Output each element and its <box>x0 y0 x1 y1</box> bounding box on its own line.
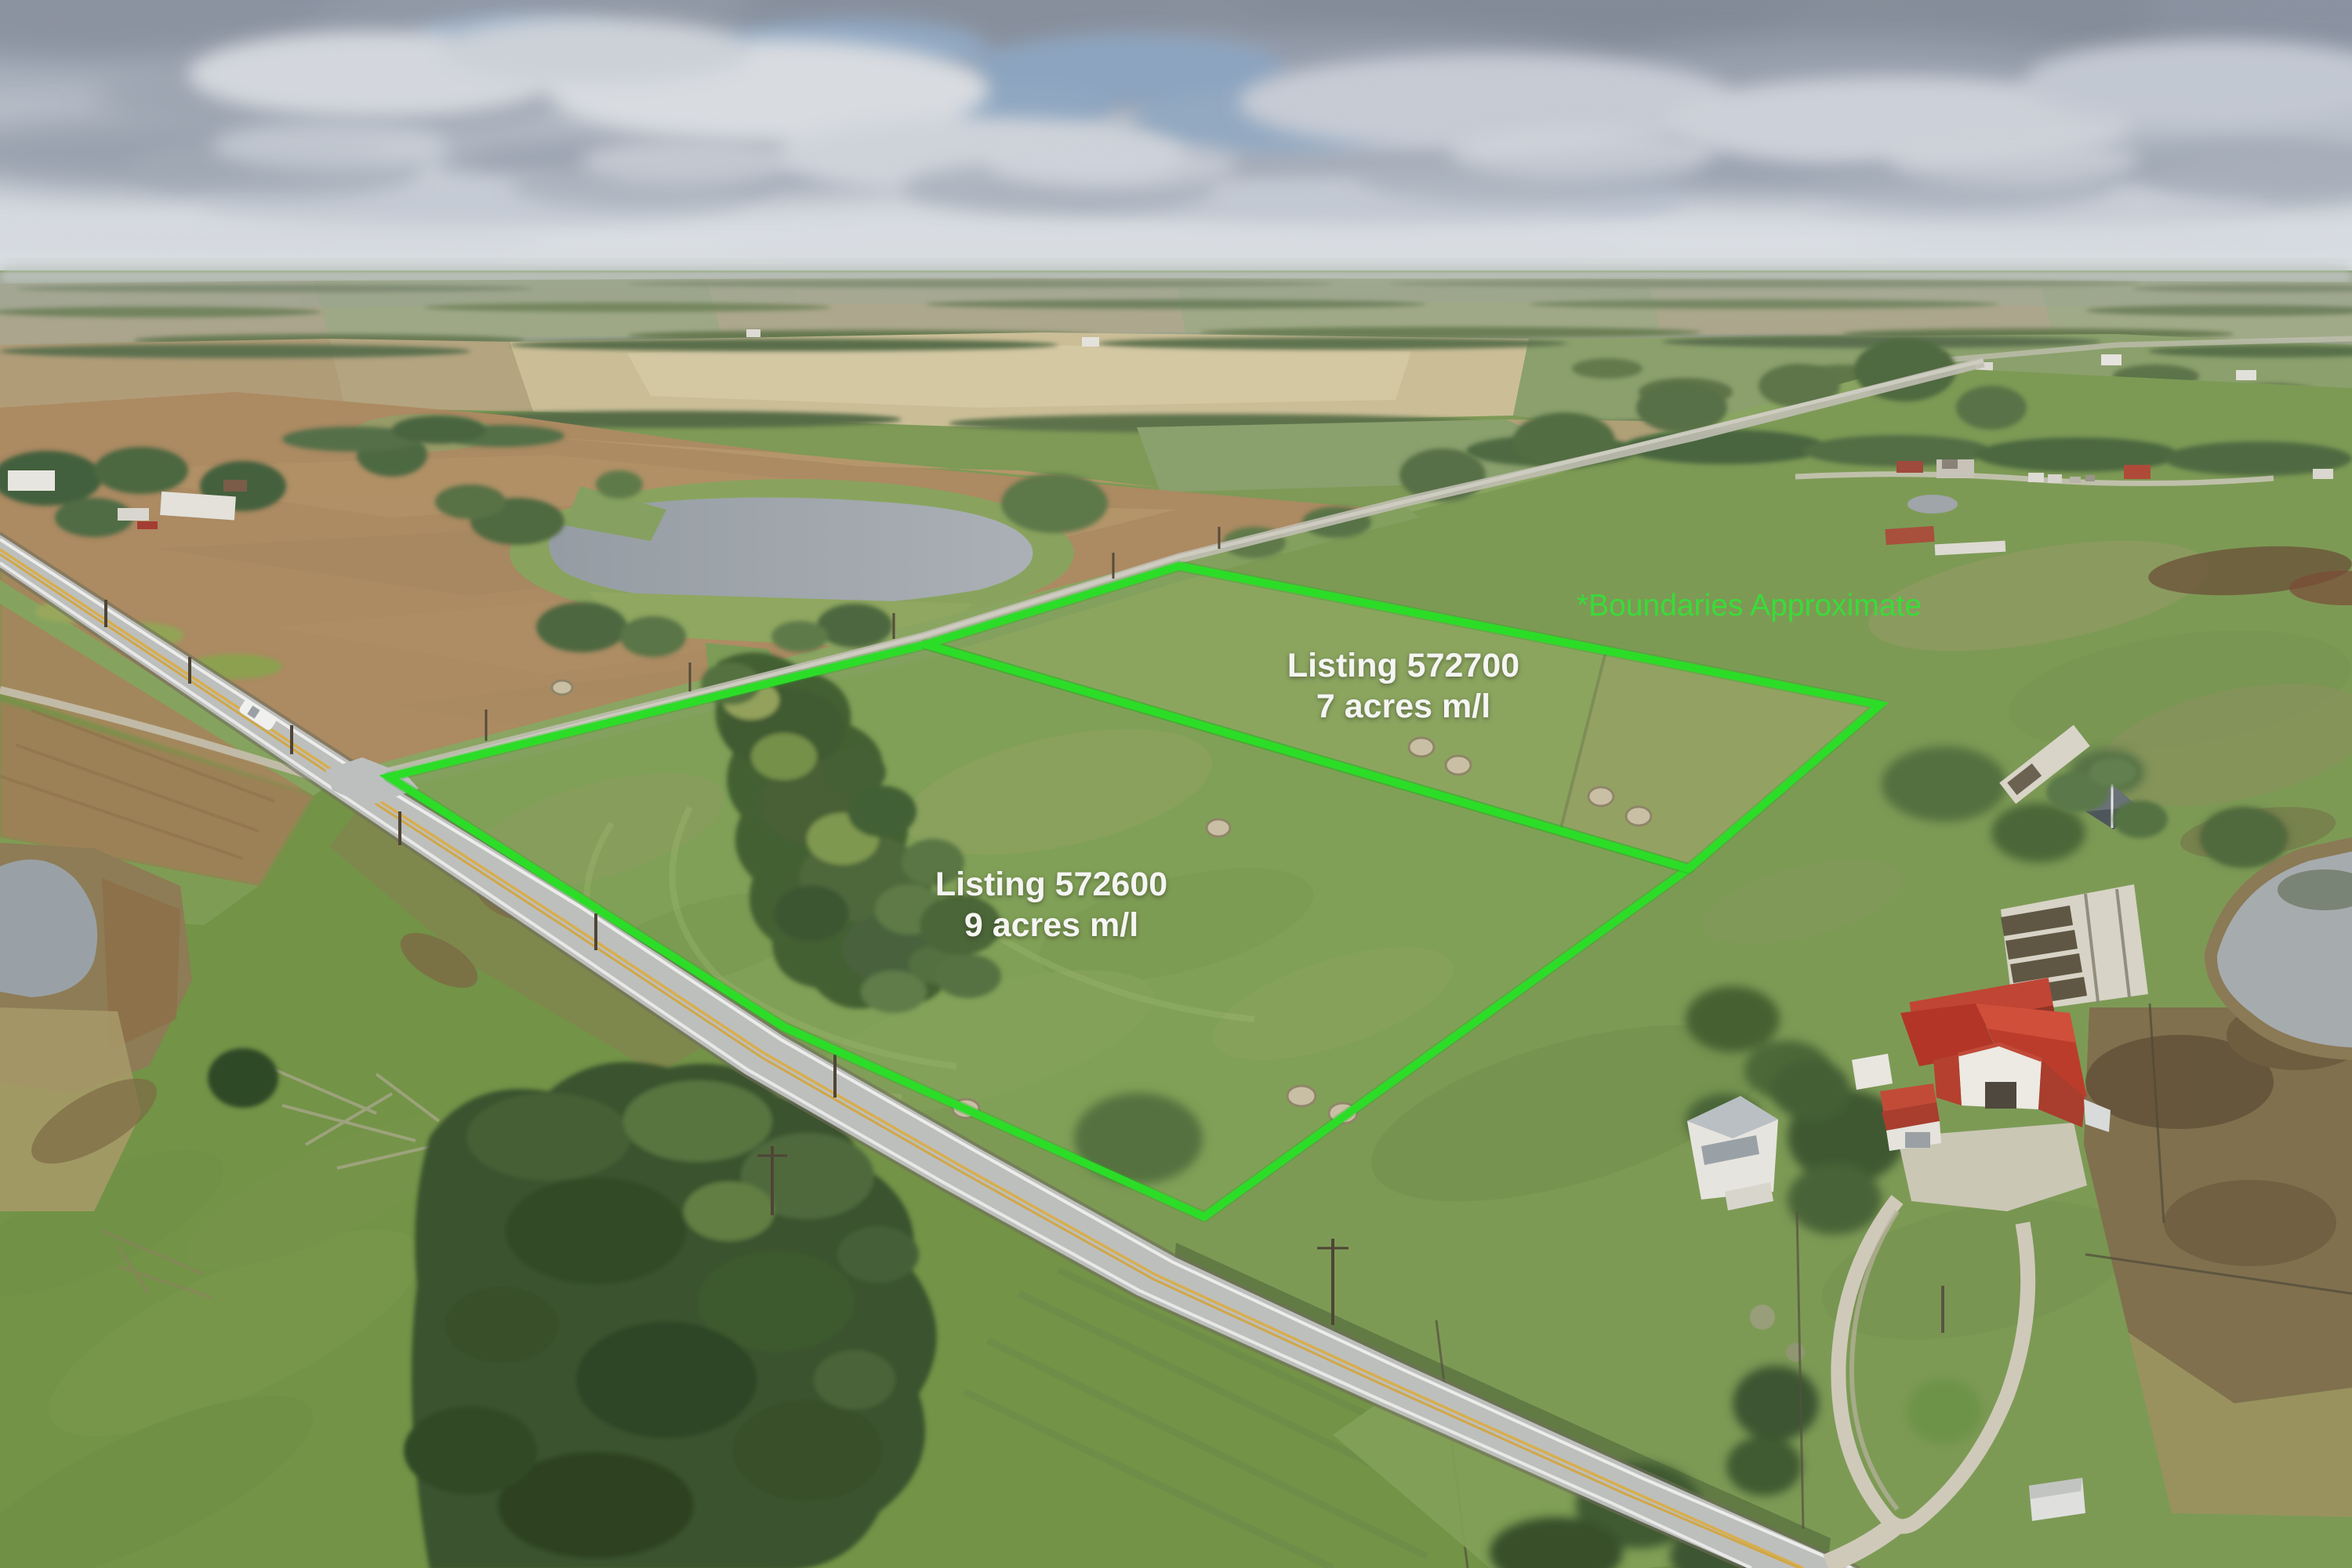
svg-text:Listing 572700: Listing 572700 <box>1287 647 1519 684</box>
svg-text:Listing 572600: Listing 572600 <box>935 866 1167 903</box>
svg-text:9 acres m/l: 9 acres m/l <box>964 906 1138 944</box>
svg-text:7 acres m/l: 7 acres m/l <box>1316 688 1490 725</box>
svg-text:*Boundaries Approximate: *Boundaries Approximate <box>1577 589 1922 622</box>
